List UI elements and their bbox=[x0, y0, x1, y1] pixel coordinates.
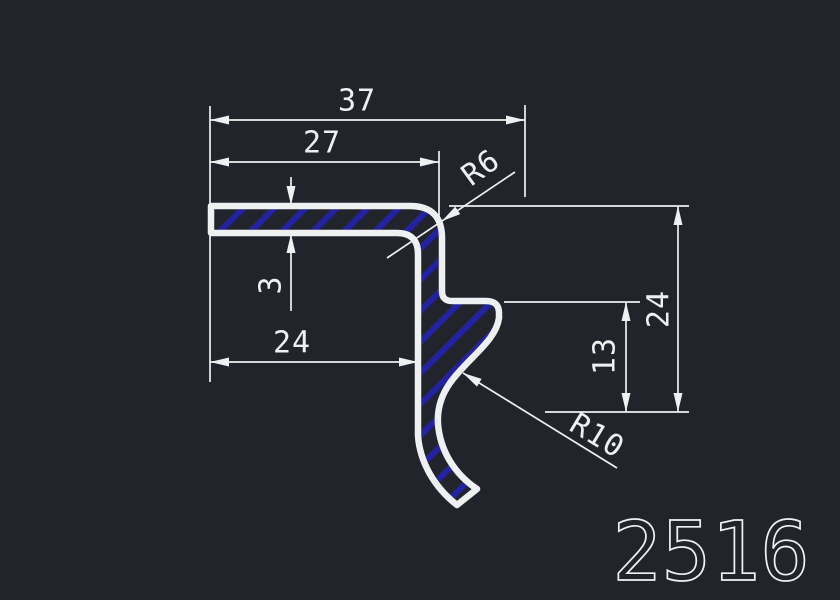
dim-3-label: 3 bbox=[254, 275, 289, 294]
part-number-label: 2516 bbox=[612, 505, 809, 600]
dim-37-label: 37 bbox=[338, 84, 376, 119]
cad-drawing-canvas: 37 27 3 24 13 24 R6 bbox=[0, 0, 840, 600]
dim-24-bottom-label: 24 bbox=[273, 326, 311, 361]
dim-27-label: 27 bbox=[303, 126, 341, 161]
dim-13-label: 13 bbox=[588, 337, 623, 375]
dim-24-height-label: 24 bbox=[642, 290, 677, 328]
